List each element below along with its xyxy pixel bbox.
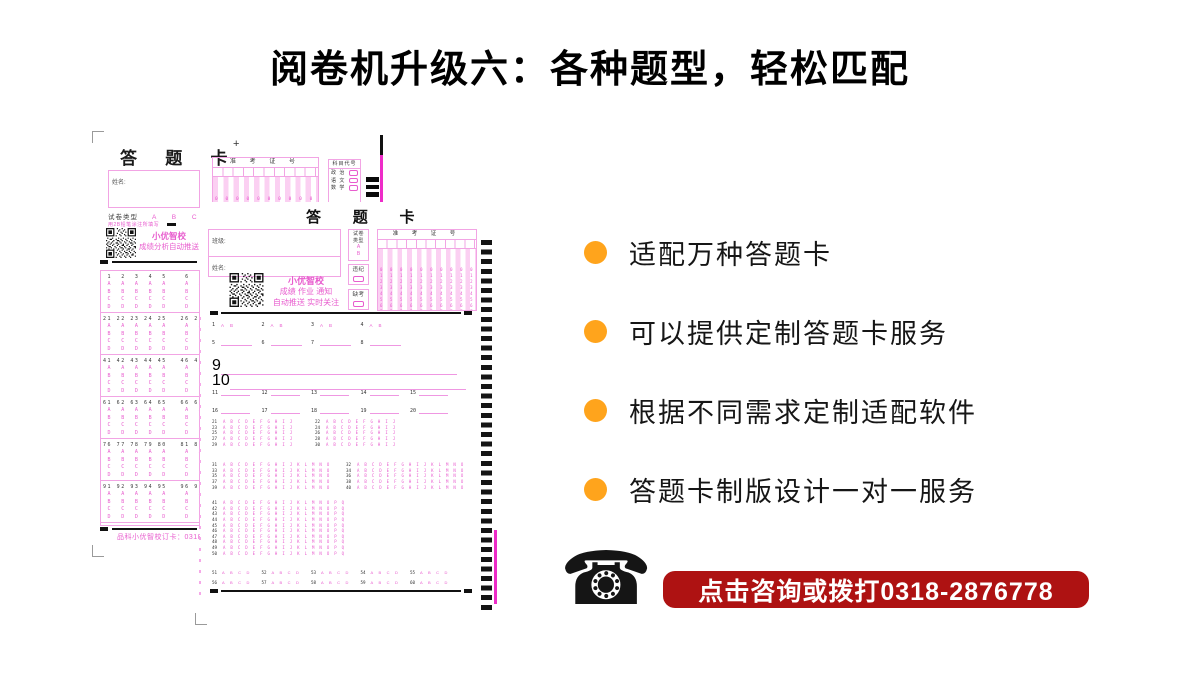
crop-mark-icon [92, 131, 104, 143]
question-block-31-40: 31A B C D E F G H I J K L M N O32A B C D… [212, 462, 465, 490]
exam-number-header: 准 考 证 号 [213, 158, 318, 168]
feature-text: 适配万种答题卡 [629, 233, 832, 272]
subject-bubble-icon [349, 170, 358, 176]
paper-type-box: 试卷 类型 A B [348, 229, 369, 261]
subject-code-header: 科目代号 [329, 160, 360, 169]
bullet-icon [584, 320, 607, 343]
feature-list: 适配万种答题卡 可以提供定制答题卡服务 根据不同需求定制适配软件 答题卡制版设计… [584, 231, 977, 547]
questions-11-15: 1112131415 [212, 390, 460, 396]
feature-item: 答题卡制版设计一对一服务 [584, 468, 977, 510]
paper-type-text: 试卷 [349, 231, 368, 237]
contact-banner[interactable]: 点击咨询或拨打0318-2876778 [663, 571, 1089, 608]
note-dash-icon [167, 223, 176, 226]
feature-item: 根据不同需求定制适配软件 [584, 389, 977, 431]
answer-sheet-card-front: 答 题 卡 班级: 姓名: 试卷 类型 A B 违纪 缺考 准 考 证 号 0 … [200, 202, 497, 622]
class-label: 班级: [209, 234, 229, 247]
paper-type-option: B [349, 251, 368, 258]
question-block-41-50: 41A B C D E F G H I J K L M N O P Q42A B… [212, 500, 345, 556]
qr-caption: 小优智校 成绩分析自动推送 [138, 231, 200, 252]
question-10: 10 [212, 372, 466, 390]
qr-code-icon [106, 228, 136, 258]
qr-code-icon [228, 273, 265, 307]
front-exam-number-grid: 准 考 证 号 0 0 0 0 0 0 0 0 0 01 1 1 1 1 1 1… [377, 229, 477, 311]
section-divider [210, 311, 472, 315]
feature-item: 适配万种答题卡 [584, 231, 977, 273]
answer-block: 91 92 93 94 95 96 97 98 A A A A A A A A … [101, 481, 199, 523]
answer-block: 61 62 63 64 65 66 67 68 A A A A A A A A … [101, 397, 199, 439]
exam-number-cells [378, 240, 476, 249]
violation-box: 违纪 [348, 264, 369, 285]
exam-number-bubbles: 0 0 0 0 0 0 0 0 0 01 1 1 1 1 1 1 1 1 12 … [378, 249, 476, 310]
banner-text: 点击咨询或拨打0318-2876778 [698, 572, 1053, 608]
questions-1-4: 1A B2A B3A B4A B [212, 322, 410, 328]
pencil-note: 用2B铅笔涂注所填写 [108, 221, 176, 228]
phone-icon: ☎ [560, 540, 652, 618]
qr-caption-line: 成绩 作业 通知 [264, 287, 348, 298]
questions-51-55: 51A B C D52A B C D53A B C D54A B C D55A … [212, 570, 460, 575]
bullet-icon [584, 399, 607, 422]
qr-caption: 小优智校 成绩 作业 通知 自动推送 实时关注 [264, 276, 348, 308]
absent-box: 缺考 [348, 289, 369, 310]
exam-number-header: 准 考 证 号 [378, 230, 476, 240]
crop-mark-icon [92, 545, 104, 557]
front-card-title: 答 题 卡 [306, 206, 429, 227]
bullet-icon [584, 241, 607, 264]
student-info-box: 班级: 姓名: [208, 229, 341, 277]
questions-16-20: 1617181920 [212, 408, 460, 414]
answer-block: 21 22 23 24 25 26 27 28 A A A A A A A A … [101, 313, 199, 355]
questions-5-8: 5678 [212, 340, 410, 346]
block-timing-marks [366, 177, 379, 200]
answer-block: 76 77 78 79 80 81 82 83 A A A A A A A A … [101, 439, 199, 481]
answer-block: 1 2 3 4 5 6 7 8 A A A A A A A A B B B B … [101, 271, 199, 313]
promo-page: 阅卷机升级六：各种题型，轻松匹配 答 题 卡 姓名: + 准 考 证 号 0 0… [0, 0, 1180, 688]
magenta-edge-stripe [494, 530, 497, 604]
page-title: 阅卷机升级六：各种题型，轻松匹配 [0, 38, 1180, 93]
feature-text: 根据不同需求定制适配软件 [629, 391, 977, 430]
questions-56-60: 56A B C D57A B C D58A B C D59A B C D60A … [212, 580, 460, 585]
bullet-icon [584, 478, 607, 501]
violation-bubble-icon [353, 276, 364, 282]
back-name-label: 姓名: [109, 175, 129, 188]
qr-caption-brand: 小优智校 [264, 276, 348, 287]
feature-text: 可以提供定制答题卡服务 [629, 312, 948, 351]
absent-label: 缺考 [349, 292, 368, 299]
pencil-note-text: 用2B铅笔涂注所填写 [108, 222, 159, 228]
qr-caption-line: 成绩分析自动推送 [138, 242, 200, 252]
name-label: 姓名: [209, 261, 229, 274]
feature-text: 答题卡制版设计一对一服务 [629, 470, 977, 509]
back-name-box: 姓名: [108, 170, 200, 208]
subject-bubble-icon [349, 178, 358, 184]
exam-number-cells [213, 168, 318, 177]
alignment-plus-mark: + [233, 138, 239, 150]
question-block-21-30: 21A B C D E F G H I J22A B C D E F G H I… [212, 419, 396, 447]
left-timing-ticks [199, 317, 201, 595]
qr-caption-brand: 小优智校 [138, 231, 200, 242]
answer-bubble-panel: 1 2 3 4 5 6 7 8 A A A A A A A A B B B B … [100, 270, 200, 526]
feature-item: 可以提供定制答题卡服务 [584, 310, 977, 352]
card-edge-stripe [380, 135, 383, 205]
section-divider [210, 589, 472, 593]
subject-code-rows: 政 治语 文数 学 [329, 169, 360, 192]
absent-bubble-icon [353, 301, 364, 307]
right-timing-marks [481, 240, 492, 612]
qr-caption-line: 自动推送 实时关注 [264, 298, 348, 309]
answer-block: 41 42 43 44 45 46 47 48 A A A A A A A A … [101, 355, 199, 397]
crop-mark-icon [195, 613, 207, 625]
subject-bubble-icon [349, 185, 358, 191]
violation-label: 违纪 [349, 267, 368, 274]
